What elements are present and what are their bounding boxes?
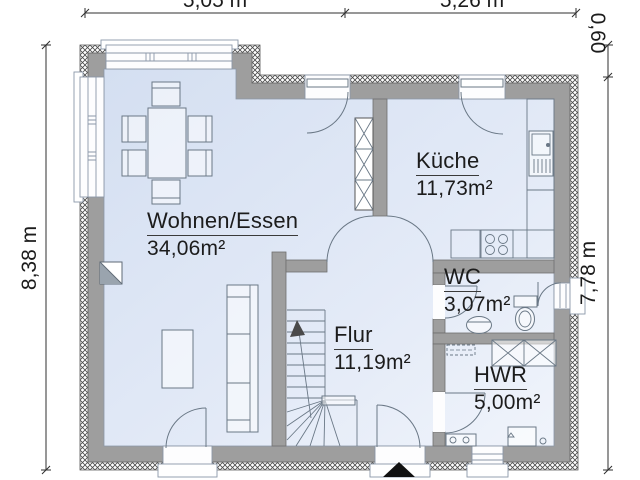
dim-top-right: 5,26 m bbox=[422, 0, 522, 13]
room-name-wohnen: Wohnen/Essen bbox=[147, 208, 298, 236]
wc-sink bbox=[467, 317, 492, 334]
room-area-hwr: 5,00m² bbox=[474, 390, 541, 416]
sofa bbox=[227, 285, 258, 432]
flur-west-wall bbox=[272, 252, 286, 446]
stair-rail bbox=[322, 396, 355, 405]
room-label-kueche: Küche 11,73m² bbox=[416, 148, 493, 202]
room-label-hwr: HWR 5,00m² bbox=[474, 362, 541, 416]
room-name-kueche: Küche bbox=[416, 148, 479, 176]
room-area-kueche: 11,73m² bbox=[416, 176, 493, 202]
chimney-block bbox=[355, 118, 373, 210]
window-top-wohnen bbox=[101, 40, 238, 69]
hwr-west-wall-lower bbox=[433, 432, 445, 446]
room-area-wohnen: 34,06m² bbox=[147, 236, 298, 262]
dim-right: 7,78 m bbox=[577, 223, 601, 323]
room-name-hwr: HWR bbox=[474, 362, 527, 390]
room-name-flur: Flur bbox=[334, 322, 373, 350]
dim-right-offset: 0,60 bbox=[585, 3, 609, 63]
fireplace-symbol bbox=[100, 262, 122, 284]
window-left-wohnen bbox=[74, 72, 104, 202]
room-label-wohnen: Wohnen/Essen 34,06m² bbox=[147, 208, 298, 262]
room-label-wc: WC 3,07m² bbox=[444, 264, 511, 318]
dim-left: 8,38 m bbox=[18, 208, 42, 308]
wc-west-wall-lower bbox=[433, 319, 445, 333]
dim-top-left: 5,05 m bbox=[165, 0, 265, 13]
hwr-west-wall-upper bbox=[433, 344, 445, 392]
room-area-flur: 11,19m² bbox=[334, 350, 411, 376]
room-name-wc: WC bbox=[444, 264, 481, 292]
hwr-cabinet-south bbox=[446, 434, 476, 446]
floorplan-canvas: Wohnen/Essen 34,06m² Küche 11,73m² WC 3,… bbox=[0, 0, 640, 480]
room-area-wc: 3,07m² bbox=[444, 292, 511, 318]
floorplan-drawing bbox=[0, 0, 640, 480]
kitchen-sink bbox=[529, 131, 553, 176]
window-hwr bbox=[467, 446, 508, 477]
coffee-table bbox=[162, 330, 193, 388]
kitchen-west-wall bbox=[373, 99, 387, 216]
room-label-flur: Flur 11,19m² bbox=[334, 322, 411, 376]
